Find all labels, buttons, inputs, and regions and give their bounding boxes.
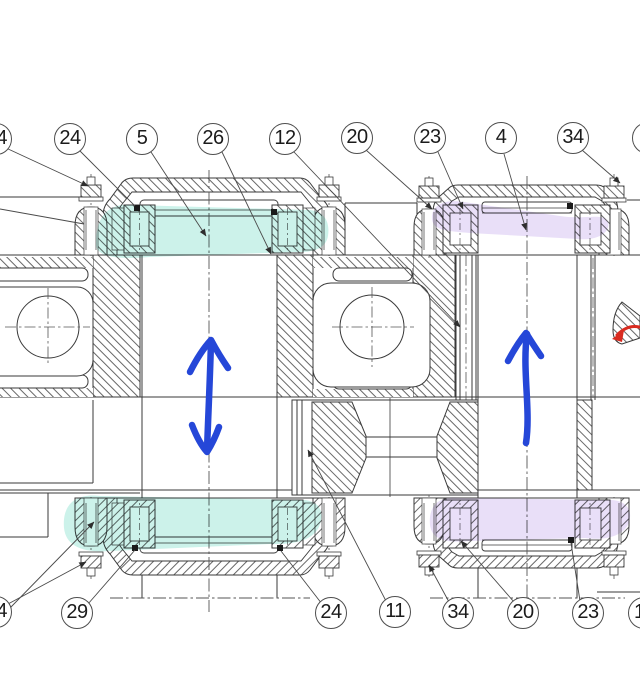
balloon-26-top: 26	[197, 123, 229, 155]
balloon-23-bottom: 23	[572, 597, 604, 629]
balloon-34-top: 34	[557, 122, 589, 154]
balloon-34-bottom: 34	[442, 597, 474, 629]
blue-double-arrow-left	[190, 340, 228, 452]
blue-up-arrow-right	[508, 333, 541, 443]
balloon-4-top-right: 4	[485, 122, 517, 154]
balloon-24-top: 24	[54, 123, 86, 155]
balloon-20-top: 20	[341, 122, 373, 154]
balloon-20-bottom: 20	[507, 597, 539, 629]
balloon-11-bottom: 11	[379, 596, 411, 628]
flange-pocket-left	[0, 268, 93, 388]
balloon-5-top: 5	[126, 123, 158, 155]
balloon-29-bottom: 29	[61, 597, 93, 629]
balloon-23-top: 23	[414, 122, 446, 154]
annotated-technical-drawing: 4 24 5 26 12 20 23 4 34 4 29 24 11 34 20…	[0, 0, 640, 697]
highlight-teal-top	[96, 205, 328, 258]
balloon-12-top: 12	[269, 123, 301, 155]
technical-drawing-canvas	[0, 0, 640, 697]
highlight-teal-bottom	[64, 496, 322, 552]
flange-pocket-middle	[313, 268, 430, 389]
wheel-hub-section	[292, 398, 592, 497]
balloon-24-bottom: 24	[315, 597, 347, 629]
highlight-purple-bottom	[430, 497, 630, 541]
